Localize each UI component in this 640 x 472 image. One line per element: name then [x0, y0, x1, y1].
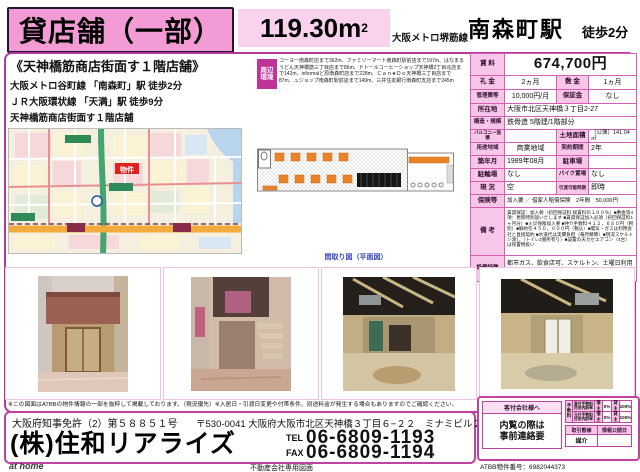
- floor-area-badge: 119.30m2: [238, 9, 390, 47]
- area-unit: m: [338, 13, 361, 44]
- disclaimer-text: ※この図面はATBBの物件情報の一部を抜粋して掲載しております。（現況優先）※入…: [8, 399, 470, 408]
- deal-type-label: 取引態様: [566, 426, 598, 435]
- address-label: 所在地: [471, 104, 505, 117]
- guarantee-money-value: なし: [589, 90, 637, 104]
- handover-value: 即時: [589, 182, 637, 195]
- photo-storefront: [38, 276, 128, 392]
- notes-value: 賃貸保証：加入要（初回保証料 総賃料の１００％）■敷金等4項：更新時別途いたしま…: [505, 208, 637, 256]
- deal-type-value: 媒介: [566, 435, 598, 447]
- photo-box-1: [5, 267, 161, 400]
- fee-row1-owner-value: 100%: [620, 401, 632, 412]
- photo-box-3: [321, 267, 477, 400]
- deal-type-table: 取引態様 情報公開日 媒介: [565, 425, 632, 447]
- fee-table: 手数料 客付手数料 目安内訳率 借主 0% 貸主 100% 元付手数料 目安内訳…: [565, 400, 632, 423]
- publish-date-label: 情報公開日: [598, 426, 632, 435]
- address-value: 大阪市北区天神橋３丁目2-27: [505, 104, 637, 117]
- tel-label: TEL: [286, 433, 303, 443]
- insurance-label: 保険等: [471, 195, 505, 208]
- publisher-name: (株)住和リアライズ: [10, 424, 236, 460]
- agent-notice: 客付会社様へ 内覧の際は 事前連絡要: [482, 401, 562, 449]
- agent-notice-body: 内覧の際は 事前連絡要: [483, 414, 561, 447]
- fee-row2-name: 元付手数料 目安内訳率: [573, 412, 595, 423]
- mgmt-fee-label: 管理費等: [471, 90, 505, 104]
- built-value: 1989年08月: [505, 156, 557, 169]
- fax-number: 06-6809-1194: [306, 442, 435, 464]
- area-value: 119.30: [260, 13, 338, 44]
- athome-logo: at home: [9, 461, 44, 471]
- agent-note-line-2: 事前連絡要: [499, 431, 544, 442]
- photo-box-2: [163, 267, 319, 400]
- rail-line-name: 大阪メトロ堺筋線: [392, 30, 468, 44]
- guarantee-money-label: 保証金: [557, 90, 589, 104]
- notes-label: 備 考: [471, 208, 505, 256]
- structure-label: 構造・規模: [471, 117, 505, 130]
- zoning-label: 用途地域: [471, 143, 505, 156]
- map-station-box: [67, 223, 85, 232]
- zoning-value: 商業地域: [505, 143, 557, 156]
- photo-interior-1: [343, 277, 455, 391]
- walk-time: 徒歩2分: [582, 22, 628, 41]
- key-money-label: 礼 金: [471, 76, 505, 90]
- area-superscript: 2: [361, 21, 368, 35]
- balcony-value: [505, 130, 557, 143]
- balcony-label: バルコニー面積: [471, 130, 505, 143]
- floor-plan-caption: 間取り図（平面図）: [257, 252, 455, 262]
- spec-table: 賃 料 674,700円 礼 金 2ヵ月 敷 金 1ヵ月 管理費等 10,000…: [470, 53, 637, 282]
- parking-label: 駐車場: [557, 156, 589, 169]
- bike-value: なし: [589, 169, 637, 182]
- deposit-value: 1ヵ月: [589, 76, 637, 90]
- mgmt-fee-value: 10,000円/月: [505, 90, 557, 104]
- photo-entrance: [191, 277, 291, 391]
- term-label: 契約期間: [557, 143, 589, 156]
- parking-value: [589, 156, 637, 169]
- rent-value: 674,700円: [505, 54, 637, 76]
- photo-box-4: [479, 267, 635, 400]
- fee-row2-owner-value: 100%: [620, 412, 632, 423]
- photo-interior-2: [501, 279, 613, 389]
- map-metro-icon: [92, 196, 102, 206]
- insurance-value: 加入要 ／ 借家人賠償保険 2年間 50,000円: [505, 195, 637, 208]
- fax-label: FAX: [286, 448, 304, 458]
- fee-row1-name: 客付手数料 目安内訳率: [573, 401, 595, 412]
- term-value: 2年: [589, 143, 637, 156]
- fee-row2-tenant-label: 借主: [595, 412, 603, 423]
- bike-label: バイク置場: [557, 169, 589, 182]
- surroundings-text: コーヨー南森町店まで362m、ファミリーマート南森町駅前店まで197m、はなまる…: [279, 58, 465, 84]
- feature-line-1: 天神橋筋商店街面す１階店舗: [10, 110, 256, 124]
- built-label: 築年月: [471, 156, 505, 169]
- internal-use-note: 不動産会社専用図面: [250, 463, 313, 472]
- map-station-label: [65, 135, 91, 143]
- access-line-2: ＪＲ大阪環状線 「天満」駅 徒歩9分: [10, 94, 256, 108]
- rent-label: 賃 料: [471, 54, 505, 76]
- bicycle-value: なし: [505, 169, 557, 182]
- bicycle-label: 駐輪場: [471, 169, 505, 182]
- agent-notice-header: 客付会社様へ: [483, 402, 561, 414]
- property-type-badge: 貸店舗（一部）: [7, 7, 234, 53]
- structure-value: 鉄骨造 5階建/1階部分: [505, 117, 637, 130]
- status-value: 空: [505, 182, 557, 195]
- land-area-value: （公簿）141.04㎡: [589, 130, 637, 143]
- floor-plan: [257, 145, 455, 195]
- agent-note-line-1: 内覧の際は: [499, 420, 544, 431]
- catch-title: 《天神橋筋商店街面す１階店舗》: [10, 56, 256, 75]
- publish-date-value: [598, 435, 632, 447]
- land-area-label: 土地面積: [557, 130, 589, 143]
- status-label: 現 況: [471, 182, 505, 195]
- fee-row2-tenant-value: 0%: [603, 412, 612, 423]
- fee-row1-tenant-value: 0%: [603, 401, 612, 412]
- atbb-number: ATBB物件番号：6982044373: [480, 461, 565, 471]
- handover-label: 引渡可能時期: [557, 182, 589, 195]
- station-name: 南森町駅: [468, 12, 564, 44]
- fee-label: 手数料: [566, 401, 573, 423]
- key-money-value: 2ヵ月: [505, 76, 557, 90]
- flyer-page: 貸店舗（一部） 119.30m2 大阪メトロ堺筋線 南森町駅 徒歩2分 《天神橋…: [0, 0, 640, 472]
- deposit-label: 敷 金: [557, 76, 589, 90]
- location-map: 物件: [8, 128, 242, 254]
- map-road-green: [101, 129, 104, 253]
- map-marker-text: 物件: [120, 165, 134, 174]
- access-line-1: 大阪メトロ谷町線 「南森町」駅 徒歩2分: [10, 78, 256, 92]
- surroundings-label: 周辺環境: [257, 59, 277, 89]
